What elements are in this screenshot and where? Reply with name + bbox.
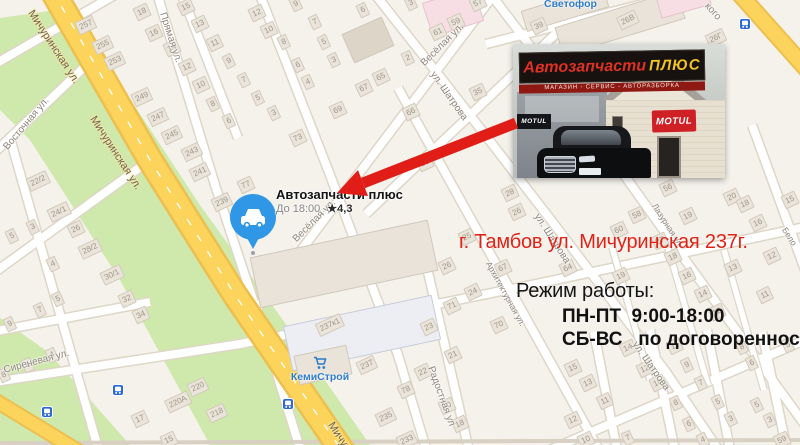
photo-door <box>657 136 681 178</box>
poi-svetofor[interactable]: Светофор <box>544 0 597 10</box>
storefront-photo: MOTUL MOTUL АвтозапчастиПЛЮС МАГАЗИН - С… <box>513 44 725 178</box>
poi-label: КемиСтрой <box>291 371 349 383</box>
photo-car-windshield <box>561 130 621 145</box>
schedule-weekend: СБ-ВС по договоренности <box>562 329 800 351</box>
schedule-title: Режим работы: <box>516 280 654 303</box>
transit-stop-icon[interactable] <box>282 398 294 410</box>
address-annotation: г. Тамбов ул. Мичуринская 237г. <box>459 231 748 254</box>
star-icon: ★ <box>327 203 337 215</box>
transit-stop-icon[interactable] <box>112 384 124 396</box>
photo-car-plate <box>579 168 601 175</box>
pin-subtitle: До 18:00★4,3 <box>276 203 403 217</box>
sign-text-accent: ПЛЮС <box>649 56 701 74</box>
motul-banner-right: MOTUL <box>652 109 697 132</box>
pin-label[interactable]: Автозапчасти плюс До 18:00★4,3 <box>276 187 403 217</box>
photo-car-grille <box>544 156 576 173</box>
motul-banner-left: MOTUL <box>517 114 551 129</box>
photo-car-headlight <box>579 155 595 162</box>
pin-title: Автозапчасти плюс <box>276 187 403 203</box>
schedule-weekdays: ПН-ПТ 9:00-18:00 <box>562 306 724 328</box>
transit-stop-icon[interactable] <box>41 406 53 418</box>
sign-text-main: Автозапчасти <box>523 57 646 77</box>
poi-kemistroy[interactable]: КемиСтрой <box>285 356 355 383</box>
map-canvas[interactable]: 2572552532492472452432412397718161412108… <box>0 0 800 445</box>
shopping-cart-icon <box>313 356 328 370</box>
store-sign: АвтозапчастиПЛЮС <box>519 49 706 83</box>
map-pin-autoparts[interactable] <box>227 192 279 256</box>
transit-stop-icon[interactable] <box>739 18 751 30</box>
